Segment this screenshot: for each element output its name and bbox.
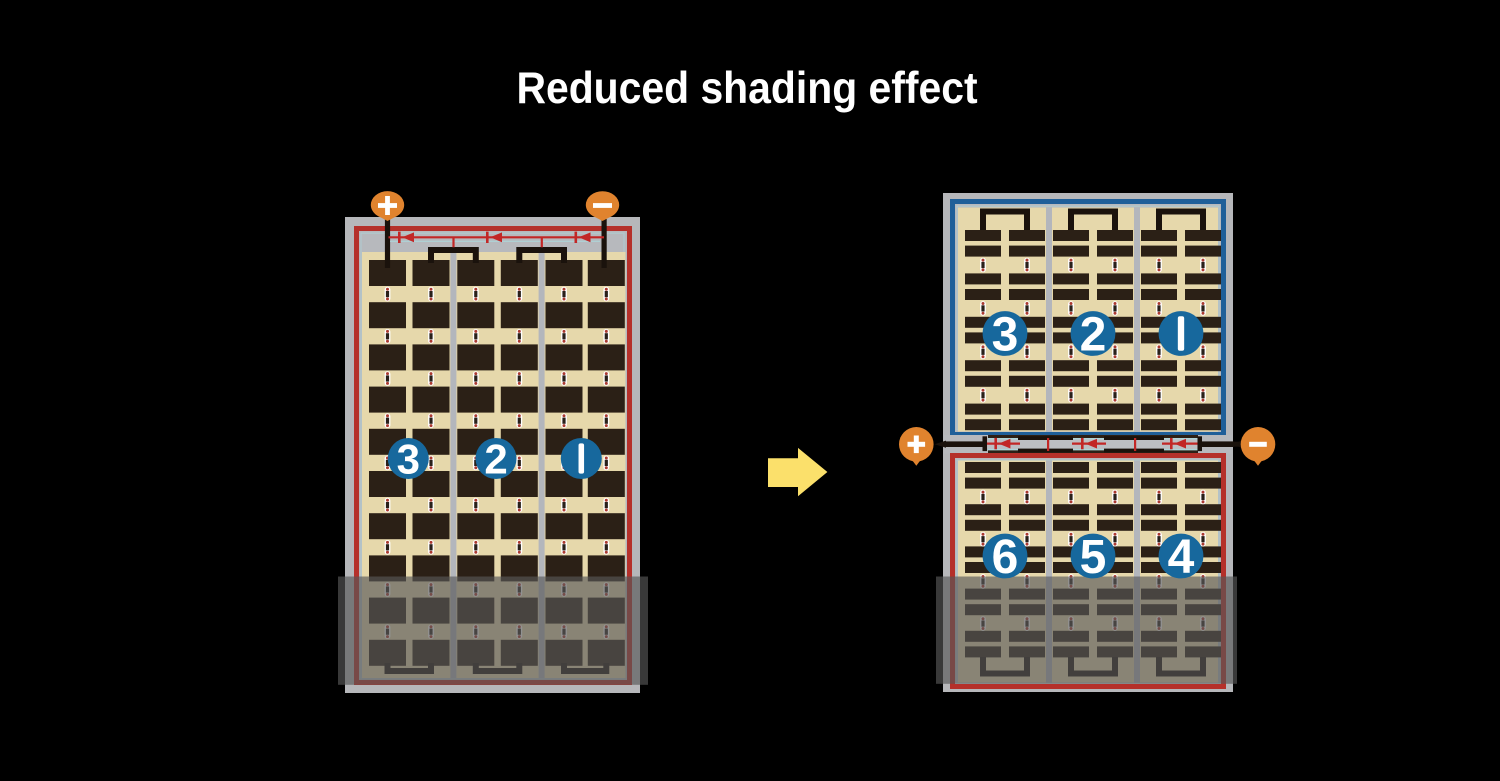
svg-text:6: 6 — [992, 531, 1019, 584]
svg-text:Reduced shading effect: Reduced shading effect — [516, 63, 977, 113]
svg-text:2: 2 — [484, 436, 507, 483]
svg-text:3: 3 — [992, 309, 1019, 362]
svg-text:2: 2 — [1080, 309, 1107, 362]
svg-text:5: 5 — [1080, 531, 1107, 584]
svg-text:4: 4 — [1168, 531, 1195, 584]
svg-text:3: 3 — [397, 436, 420, 483]
